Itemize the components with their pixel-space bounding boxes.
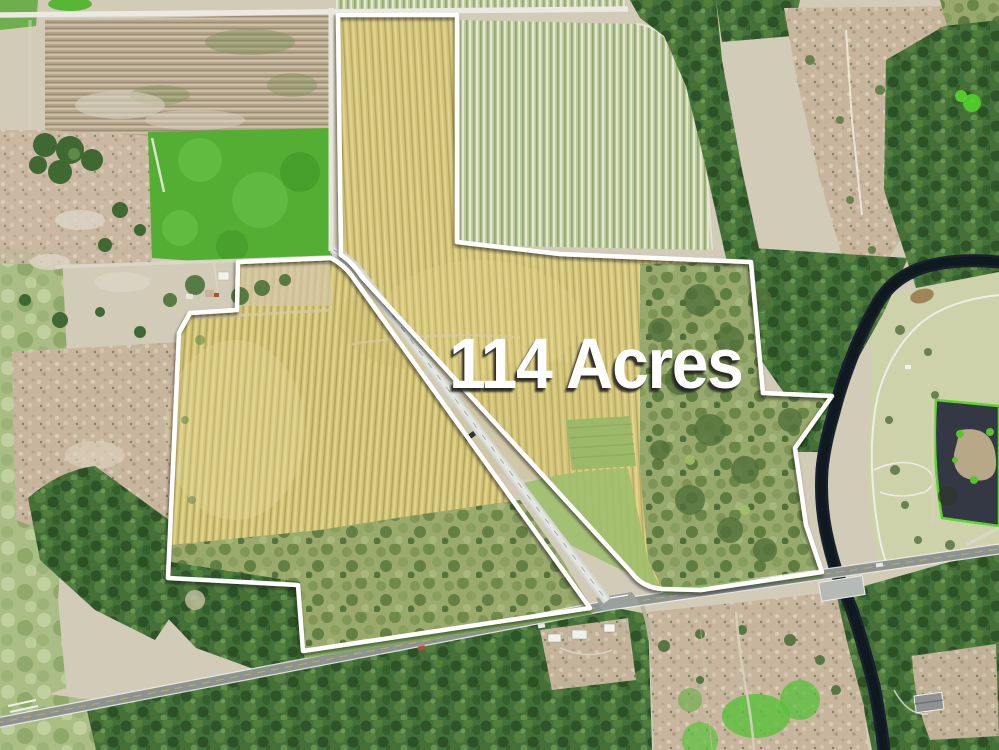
farmstead-clearing xyxy=(540,618,636,690)
bright-green-patch-2 xyxy=(955,90,967,102)
house xyxy=(914,692,944,713)
outbuilding xyxy=(205,290,214,297)
small-shed xyxy=(186,294,193,299)
red-roof-shed xyxy=(214,293,219,297)
pasture-south xyxy=(648,592,868,750)
shed-2 xyxy=(572,630,587,639)
aerial-photo: 114 Acres xyxy=(0,0,999,750)
shed-1 xyxy=(548,634,561,642)
acreage-label: 114 Acres xyxy=(449,329,742,400)
green-field xyxy=(148,128,332,262)
tilled-field xyxy=(45,14,330,136)
house-white-roof xyxy=(218,272,229,280)
retention-pond xyxy=(933,400,999,526)
shed-3 xyxy=(604,624,615,632)
park-structure xyxy=(905,365,911,369)
